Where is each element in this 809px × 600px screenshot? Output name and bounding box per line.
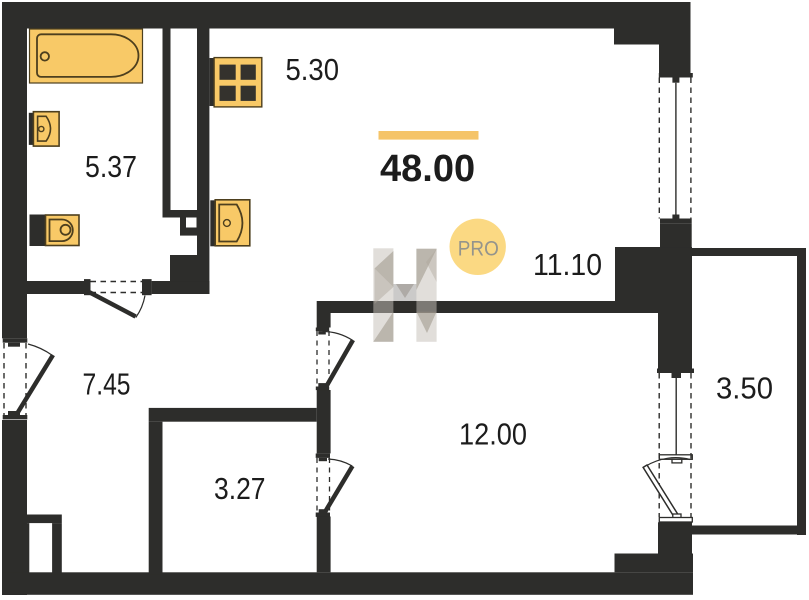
svg-text:11.10: 11.10 (533, 247, 602, 282)
svg-text:5.37: 5.37 (85, 149, 137, 184)
svg-text:12.00: 12.00 (459, 417, 527, 452)
svg-text:PRO: PRO (458, 236, 499, 260)
svg-text:7.45: 7.45 (83, 367, 131, 402)
svg-text:5.30: 5.30 (286, 52, 340, 87)
svg-text:48.00: 48.00 (380, 148, 475, 190)
svg-text:3.50: 3.50 (716, 371, 773, 406)
svg-text:3.27: 3.27 (214, 471, 266, 506)
